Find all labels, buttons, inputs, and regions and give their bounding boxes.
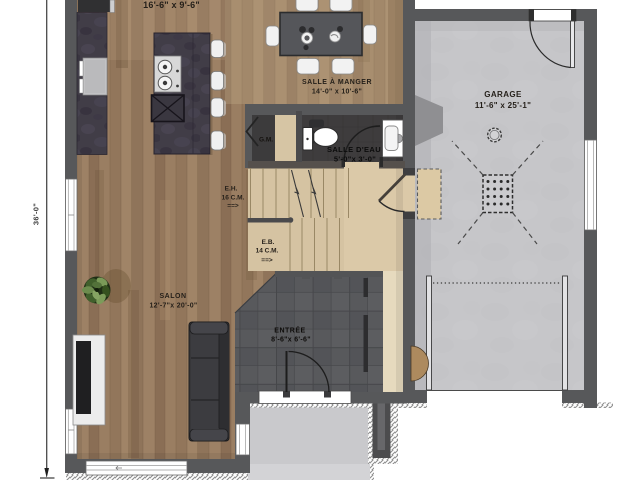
svg-text:16'-6" x 9'-6": 16'-6" x 9'-6": [143, 0, 200, 10]
svg-text:E.B.: E.B.: [262, 239, 275, 246]
svg-text:16 C.M.: 16 C.M.: [222, 195, 245, 202]
svg-text:E.H.: E.H.: [225, 186, 238, 193]
svg-text:14 C.M.: 14 C.M.: [256, 248, 279, 255]
svg-text:SALLE À MANGER: SALLE À MANGER: [302, 77, 372, 86]
svg-text:8'-6"x 6'-6": 8'-6"x 6'-6": [271, 337, 311, 344]
svg-text:==>: ==>: [227, 203, 239, 210]
svg-text:5'-0"x 3'-0": 5'-0"x 3'-0": [334, 155, 376, 164]
svg-text:SALLE D'EAU: SALLE D'EAU: [327, 145, 381, 154]
svg-text:14'-0" x 10'-6": 14'-0" x 10'-6": [312, 89, 362, 96]
svg-text:11'-6" x 25'-1": 11'-6" x 25'-1": [475, 101, 531, 110]
svg-text:SALON: SALON: [160, 293, 187, 300]
svg-text:36'-0": 36'-0": [32, 203, 41, 225]
svg-text:12'-7"x 20'-0": 12'-7"x 20'-0": [149, 303, 197, 310]
svg-text:GARAGE: GARAGE: [484, 90, 522, 99]
svg-text:ENTRÉE: ENTRÉE: [274, 326, 305, 335]
svg-text:==>: ==>: [261, 257, 273, 264]
svg-text:G.M.: G.M.: [259, 137, 273, 144]
